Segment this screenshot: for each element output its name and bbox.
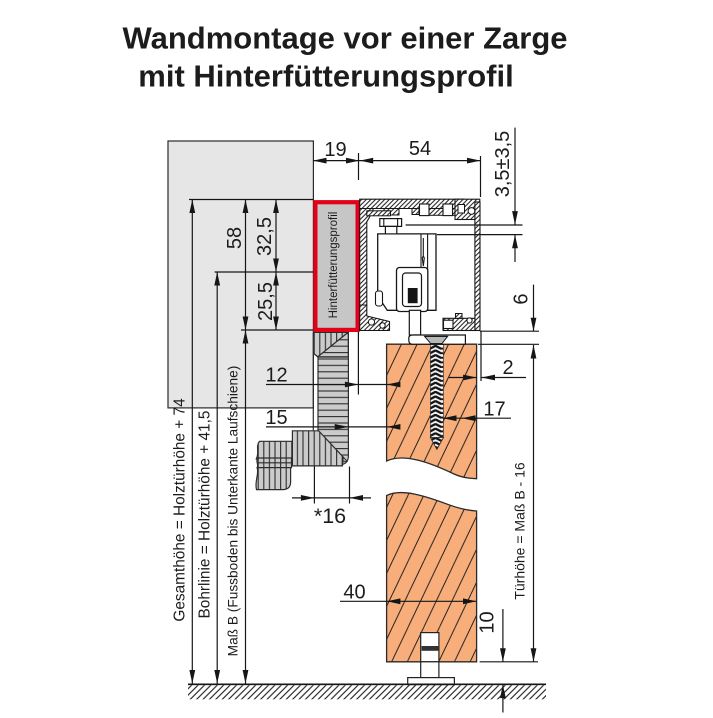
- svg-text:Türhöhe = Maß B - 16: Türhöhe = Maß B - 16: [512, 462, 528, 600]
- svg-text:Bohrlinie = Holztürhöhe + 41,5: Bohrlinie = Holztürhöhe + 41,5: [197, 411, 214, 619]
- svg-text:Wandmontage vor einer Zarge: Wandmontage vor einer Zarge: [123, 21, 568, 56]
- svg-text:19: 19: [324, 139, 346, 161]
- svg-text:6: 6: [511, 293, 533, 304]
- svg-text:17: 17: [483, 399, 505, 421]
- svg-text:2: 2: [502, 357, 513, 379]
- svg-text:mit Hinterfütterungsprofil: mit Hinterfütterungsprofil: [138, 59, 513, 94]
- svg-text:25,5: 25,5: [255, 282, 277, 321]
- svg-text:58: 58: [224, 227, 246, 249]
- svg-text:15: 15: [265, 407, 287, 429]
- svg-text:Maß B (Fussboden bis Unterkant: Maß B (Fussboden bis Unterkante Laufschi…: [226, 366, 241, 657]
- svg-text:3,5±3,5: 3,5±3,5: [492, 131, 514, 198]
- svg-text:40: 40: [343, 582, 365, 604]
- svg-text:12: 12: [265, 365, 287, 387]
- svg-text:54: 54: [409, 138, 431, 160]
- svg-text:Gesamthöhe = Holztürhöhe + 74: Gesamthöhe = Holztürhöhe + 74: [172, 398, 189, 622]
- svg-text:10: 10: [477, 611, 499, 633]
- svg-text:*16: *16: [314, 504, 346, 528]
- svg-text:Hinterfütterungsprofil: Hinterfütterungsprofil: [328, 212, 340, 319]
- svg-text:32,5: 32,5: [254, 217, 276, 256]
